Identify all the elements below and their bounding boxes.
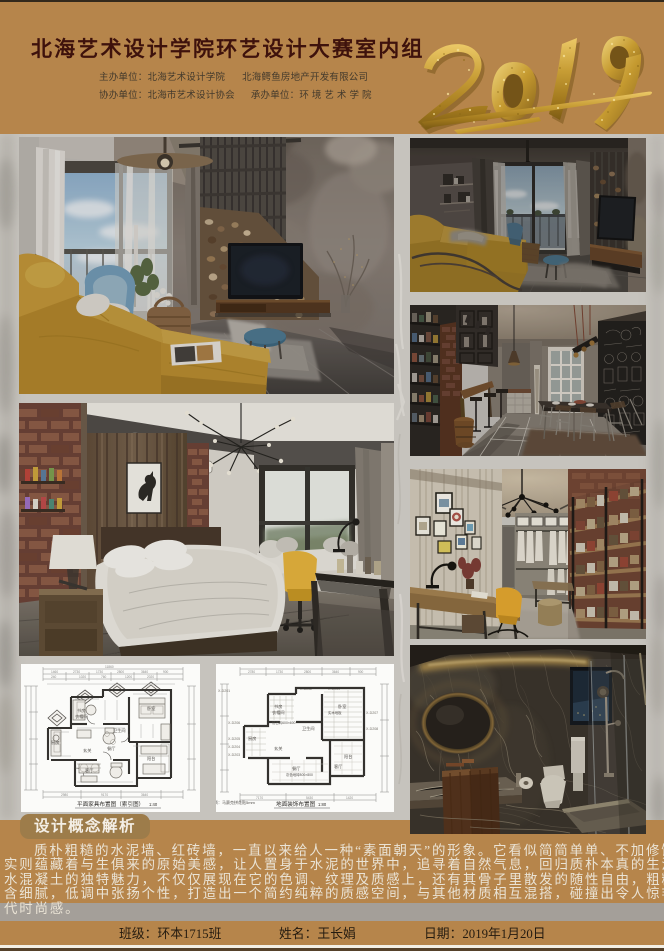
svg-text:厨房: 厨房 — [51, 739, 59, 746]
svg-text:地面装饰布置图: 地面装饰布置图 — [276, 800, 316, 808]
svg-text:卫生间: 卫生间 — [113, 727, 126, 734]
svg-text:3640: 3640 — [141, 793, 148, 797]
svg-text:衣帽间: 衣帽间 — [272, 709, 285, 716]
svg-text:1020: 1020 — [79, 675, 86, 679]
svg-text:9170: 9170 — [101, 793, 108, 797]
svg-text:240: 240 — [51, 675, 57, 679]
svg-text:2800: 2800 — [117, 670, 124, 674]
svg-text:平面家具布置图（索引图）: 平面家具布置图（索引图） — [77, 800, 144, 808]
svg-text:玄关: 玄关 — [83, 747, 91, 754]
svg-text:仿古砖600×600: 仿古砖600×600 — [272, 720, 296, 725]
svg-text:X-D206: X-D206 — [228, 721, 240, 725]
svg-text:2980: 2980 — [61, 793, 68, 797]
svg-text:11860: 11860 — [105, 665, 114, 669]
svg-text:1460: 1460 — [51, 670, 58, 674]
svg-text:阳台: 阳台 — [147, 755, 155, 762]
svg-text:玄关: 玄关 — [274, 745, 282, 752]
svg-text:阳台: 阳台 — [344, 753, 352, 760]
svg-text:2020: 2020 — [147, 675, 154, 679]
svg-text:X-D205: X-D205 — [228, 737, 240, 741]
svg-text:书房: 书房 — [274, 703, 282, 710]
svg-text:5430: 5430 — [306, 796, 313, 800]
svg-text:900: 900 — [163, 670, 169, 674]
svg-text:3640: 3640 — [332, 670, 339, 674]
svg-text:3640: 3640 — [141, 670, 148, 674]
svg-text:1:80: 1:80 — [318, 802, 327, 807]
svg-text:X-D207: X-D207 — [366, 711, 378, 715]
svg-text:1420: 1420 — [346, 796, 353, 800]
svg-text:卧室: 卧室 — [338, 703, 346, 710]
svg-text:衣帽间: 衣帽间 — [75, 713, 88, 720]
svg-text:客厅: 客厅 — [334, 763, 342, 770]
svg-text:X-D201: X-D201 — [218, 689, 230, 693]
svg-text:1:40: 1:40 — [149, 802, 158, 807]
svg-text:1730: 1730 — [96, 670, 103, 674]
svg-text:900: 900 — [358, 670, 364, 674]
svg-text:灰色地砖800×800: 灰色地砖800×800 — [286, 772, 313, 777]
svg-text:餐厅: 餐厅 — [107, 745, 115, 752]
svg-text:卫生间: 卫生间 — [302, 725, 315, 732]
svg-text:卧室: 卧室 — [147, 705, 155, 712]
svg-text:X-D204: X-D204 — [228, 745, 240, 749]
svg-text:餐厅: 餐厅 — [292, 765, 300, 772]
svg-text:1200: 1200 — [125, 675, 132, 679]
svg-text:书房: 书房 — [77, 707, 85, 714]
svg-text:1730: 1730 — [276, 670, 283, 674]
svg-text:客厅: 客厅 — [85, 767, 93, 774]
svg-text:X-D208: X-D208 — [366, 727, 378, 731]
svg-text:实木地板: 实木地板 — [328, 710, 342, 715]
svg-text:地面材质：马赛克拼花贴5mm: 地面材质：马赛克拼花贴5mm — [216, 799, 256, 805]
svg-text:7170: 7170 — [256, 796, 263, 800]
svg-text:2800: 2800 — [304, 670, 311, 674]
svg-text:X-D203: X-D203 — [228, 753, 240, 757]
svg-text:2780: 2780 — [248, 670, 255, 674]
svg-text:2730: 2730 — [73, 670, 80, 674]
svg-text:760: 760 — [101, 675, 107, 679]
svg-text:厨房: 厨房 — [248, 735, 256, 742]
